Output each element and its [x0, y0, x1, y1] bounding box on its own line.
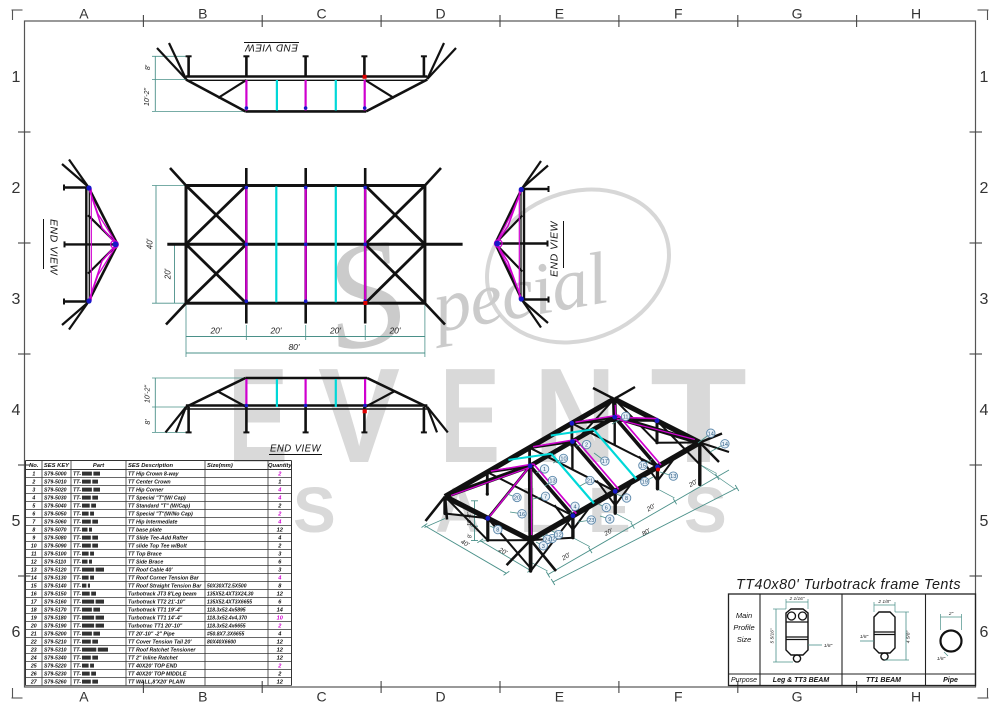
svg-text:S79-5190: S79-5190: [44, 624, 67, 630]
svg-text:TT1 BEAM: TT1 BEAM: [866, 677, 901, 684]
svg-text:Part: Part: [93, 463, 105, 469]
svg-text:10: 10: [277, 616, 284, 622]
svg-text:#50.8X7.3X6655: #50.8X7.3X6655: [207, 632, 244, 638]
svg-text:TT-: TT-: [73, 568, 81, 574]
svg-text:24: 24: [30, 656, 37, 662]
svg-text:TT-: TT-: [73, 544, 81, 550]
svg-text:TT-: TT-: [73, 480, 81, 486]
svg-text:SES KEY: SES KEY: [44, 463, 70, 469]
svg-text:12: 12: [555, 533, 561, 539]
svg-text:TT WALL,8'X20' PLAIN: TT WALL,8'X20' PLAIN: [128, 680, 185, 686]
svg-text:END VIEW: END VIEW: [270, 443, 322, 455]
svg-text:16: 16: [31, 592, 37, 598]
svg-text:9: 9: [608, 517, 611, 523]
svg-text:135X52.4XT3X6655: 135X52.4XT3X6655: [207, 600, 252, 606]
svg-text:15: 15: [31, 584, 37, 590]
svg-text:Main: Main: [736, 611, 752, 620]
svg-text:Turbotrack JT3 8'Leg beam: Turbotrack JT3 8'Leg beam: [128, 592, 197, 598]
svg-text:Leg & TT3 BEAM: Leg & TT3 BEAM: [773, 677, 830, 684]
svg-text:S79-5230: S79-5230: [44, 672, 67, 678]
svg-text:TT-: TT-: [73, 616, 81, 622]
svg-text:12: 12: [277, 640, 284, 646]
svg-text:18: 18: [31, 608, 37, 614]
svg-text:10: 10: [31, 544, 37, 550]
svg-text:5: 5: [32, 504, 35, 510]
svg-text:TT slide Top Tee w/Bolt: TT slide Top Tee w/Bolt: [128, 544, 187, 550]
svg-text:3: 3: [32, 488, 35, 494]
svg-text:C: C: [317, 6, 327, 22]
svg-text:E: E: [555, 689, 564, 705]
svg-text:A: A: [79, 6, 89, 22]
svg-text:20': 20': [329, 326, 341, 336]
svg-text:S79-5340: S79-5340: [44, 656, 67, 662]
svg-text:TT-: TT-: [73, 472, 81, 478]
svg-text:118.3x52.4v4,370: 118.3x52.4v4,370: [207, 616, 247, 622]
svg-text:19: 19: [31, 616, 37, 622]
svg-text:12: 12: [277, 592, 284, 598]
svg-text:H: H: [911, 689, 921, 705]
svg-text:TT base plate: TT base plate: [128, 528, 162, 534]
svg-text:TT-: TT-: [73, 512, 81, 518]
svg-text:4 5/8": 4 5/8": [906, 631, 912, 644]
svg-text:H: H: [911, 6, 921, 22]
svg-text:20': 20': [209, 326, 221, 336]
svg-text:TT Special "T"(W/ Cap): TT Special "T"(W/ Cap): [128, 496, 186, 502]
svg-text:1/8": 1/8": [937, 656, 946, 662]
svg-text:Profile: Profile: [733, 623, 754, 632]
svg-text:21: 21: [587, 479, 593, 485]
svg-text:2: 2: [31, 480, 35, 486]
svg-text:1: 1: [980, 69, 989, 86]
svg-text:4: 4: [573, 504, 576, 510]
svg-text:1: 1: [32, 472, 35, 478]
svg-text:TT-: TT-: [73, 648, 81, 654]
svg-text:2: 2: [12, 180, 21, 197]
svg-text:25: 25: [30, 664, 37, 670]
svg-text:S79-5100: S79-5100: [44, 552, 67, 558]
svg-text:V: V: [318, 340, 400, 491]
svg-text:S79-5010: S79-5010: [44, 480, 67, 486]
svg-text:TT-: TT-: [73, 584, 81, 590]
svg-text:23: 23: [30, 648, 37, 654]
svg-text:40': 40': [146, 238, 155, 249]
svg-text:4: 4: [980, 402, 989, 419]
svg-text:TT-: TT-: [73, 496, 81, 502]
svg-text:S79-5140: S79-5140: [44, 584, 67, 590]
svg-text:11: 11: [623, 415, 629, 421]
svg-text:3: 3: [12, 291, 21, 308]
svg-text:S79-5120: S79-5120: [44, 568, 67, 574]
svg-text:TT-: TT-: [73, 504, 81, 510]
svg-text:14: 14: [708, 431, 714, 437]
svg-text:S79-5050: S79-5050: [44, 512, 67, 518]
svg-text:14: 14: [31, 576, 37, 582]
svg-text:TT 2" Inline Ratchet: TT 2" Inline Ratchet: [128, 656, 178, 662]
svg-text:17: 17: [602, 459, 608, 465]
svg-text:S79-5130: S79-5130: [44, 576, 67, 582]
svg-text:5: 5: [12, 513, 21, 530]
svg-text:Turbotrack TT1 14'-4": Turbotrack TT1 14'-4": [128, 616, 183, 622]
svg-text:10’-2": 10’-2": [144, 87, 151, 106]
svg-text:Turbotrack TT1 19'-4": Turbotrack TT1 19'-4": [128, 608, 183, 614]
svg-text:5: 5: [980, 513, 989, 530]
svg-text:A: A: [79, 689, 89, 705]
svg-text:9: 9: [32, 536, 35, 542]
svg-text:TT Side Brace: TT Side Brace: [128, 560, 163, 566]
svg-text:TT 40X20' TOP END: TT 40X20' TOP END: [128, 664, 177, 670]
svg-text:TT-: TT-: [73, 664, 81, 670]
svg-text:1/8": 1/8": [824, 643, 833, 649]
svg-text:TT-: TT-: [73, 552, 81, 558]
svg-text:8: 8: [32, 528, 35, 534]
svg-text:5 5/16": 5 5/16": [770, 628, 776, 643]
svg-text:12: 12: [277, 648, 284, 654]
svg-text:20': 20': [269, 326, 281, 336]
svg-text:TT-: TT-: [73, 536, 81, 542]
svg-text:TT-: TT-: [73, 680, 81, 686]
svg-text:END VIEW: END VIEW: [549, 220, 561, 277]
svg-text:1: 1: [278, 480, 281, 486]
svg-text:TT 40X20' TOP MIDDLE: TT 40X20' TOP MIDDLE: [128, 672, 187, 678]
svg-text:G: G: [792, 6, 803, 22]
svg-text:TT Cover Tension Tail 20': TT Cover Tension Tail 20': [128, 640, 192, 646]
svg-text:20': 20': [388, 326, 400, 336]
svg-text:1/8": 1/8": [860, 634, 869, 640]
svg-text:20: 20: [514, 496, 520, 502]
svg-text:2 1/8": 2 1/8": [877, 599, 891, 605]
svg-text:135X52.4XT3X24,30: 135X52.4XT3X24,30: [207, 592, 254, 598]
svg-text:4: 4: [31, 496, 35, 502]
svg-text:13: 13: [670, 474, 676, 480]
svg-text:13: 13: [31, 568, 37, 574]
svg-text:TT Hip Corner: TT Hip Corner: [128, 488, 164, 494]
svg-text:118.3x52.4x5895: 118.3x52.4x5895: [207, 608, 246, 614]
svg-text:TT-: TT-: [73, 576, 81, 582]
svg-text:6: 6: [980, 624, 989, 641]
svg-text:6: 6: [605, 506, 608, 512]
svg-text:G: G: [792, 689, 803, 705]
svg-text:Size(mm): Size(mm): [207, 463, 233, 469]
svg-text:6: 6: [12, 624, 21, 641]
svg-text:TT Slide Tee-Add Rafter: TT Slide Tee-Add Rafter: [128, 536, 189, 542]
svg-text:TT Roof Corner Tension Bar: TT Roof Corner Tension Bar: [128, 576, 200, 582]
svg-text:TT Hip Crown 8-way: TT Hip Crown 8-way: [128, 472, 180, 478]
svg-text:1: 1: [12, 69, 21, 86]
svg-text:S79-5040: S79-5040: [44, 504, 67, 510]
svg-text:19: 19: [642, 480, 648, 486]
svg-text:B: B: [198, 689, 207, 705]
svg-text:S79-5260: S79-5260: [44, 680, 67, 686]
svg-text:118.3x52.4x6655: 118.3x52.4x6655: [207, 624, 246, 630]
svg-text:S79-5310: S79-5310: [44, 648, 67, 654]
svg-text:F: F: [674, 6, 683, 22]
svg-text:B: B: [198, 6, 207, 22]
svg-text:END VIEW: END VIEW: [48, 219, 60, 276]
svg-text:80': 80': [288, 342, 299, 352]
svg-text:TT Roof Cable 40': TT Roof Cable 40': [128, 568, 173, 574]
svg-text:TT-: TT-: [73, 632, 81, 638]
svg-text:TT-: TT-: [73, 520, 81, 526]
svg-text:TT-: TT-: [73, 656, 81, 662]
svg-text:12: 12: [277, 528, 284, 534]
svg-text:TT-: TT-: [73, 624, 81, 630]
svg-text:TT40x80' Turbotrack frame Tent: TT40x80' Turbotrack frame Tents: [736, 576, 961, 593]
svg-text:Quantity: Quantity: [268, 463, 292, 469]
svg-text:S79-5090: S79-5090: [44, 544, 67, 550]
svg-text:TT-: TT-: [73, 488, 81, 494]
svg-text:50X30XT2.5X500: 50X30XT2.5X500: [207, 584, 247, 590]
svg-text:14: 14: [722, 442, 728, 448]
svg-text:S79-5210: S79-5210: [44, 640, 67, 646]
svg-text:Size: Size: [737, 635, 752, 644]
svg-text:3: 3: [542, 544, 545, 550]
svg-text:S79-5200: S79-5200: [44, 632, 67, 638]
svg-text:12: 12: [277, 680, 284, 686]
svg-text:8: 8: [625, 496, 628, 502]
svg-text:2 1/16": 2 1/16": [788, 596, 804, 602]
svg-text:TT-: TT-: [73, 672, 81, 678]
svg-text:S79-5160: S79-5160: [44, 600, 67, 606]
svg-text:S79-5150: S79-5150: [44, 592, 67, 598]
svg-text:16: 16: [519, 512, 525, 518]
svg-text:SES Description: SES Description: [128, 463, 174, 469]
svg-text:14: 14: [277, 608, 284, 614]
svg-text:20': 20': [164, 268, 173, 280]
svg-text:12: 12: [277, 656, 284, 662]
svg-text:4: 4: [12, 402, 21, 419]
svg-text:6: 6: [32, 512, 35, 518]
svg-text:TT-: TT-: [73, 560, 81, 566]
svg-text:D: D: [435, 689, 445, 705]
svg-text:15: 15: [640, 464, 646, 470]
svg-text:S79-5070: S79-5070: [44, 528, 67, 534]
svg-text:8': 8': [145, 419, 152, 425]
svg-text:S: S: [293, 474, 336, 546]
svg-text:S79-5060: S79-5060: [44, 520, 67, 526]
svg-text:20: 20: [30, 624, 37, 630]
svg-text:10’-2": 10’-2": [145, 384, 152, 403]
svg-text:TT-: TT-: [73, 640, 81, 646]
svg-text:1: 1: [543, 467, 546, 473]
svg-text:Pipe: Pipe: [943, 677, 958, 684]
svg-text:S79-5220: S79-5220: [44, 664, 67, 670]
svg-text:11: 11: [31, 552, 36, 558]
svg-text:Turbotrack TT2 21'-10": Turbotrack TT2 21'-10": [128, 600, 186, 606]
svg-text:13: 13: [549, 479, 555, 485]
svg-text:D: D: [435, 6, 445, 22]
svg-text:8: 8: [496, 528, 499, 534]
svg-text:12: 12: [31, 560, 37, 566]
svg-text:S79-5080: S79-5080: [44, 536, 67, 542]
svg-text:TT Roof Ratchet Tensioner: TT Roof Ratchet Tensioner: [128, 648, 196, 654]
svg-text:S79-5020: S79-5020: [44, 488, 67, 494]
svg-text:TT-: TT-: [73, 608, 81, 614]
svg-text:8': 8': [145, 64, 152, 70]
svg-text:S79-5170: S79-5170: [44, 608, 67, 614]
svg-text:S79-5110: S79-5110: [44, 560, 66, 566]
svg-text:80X40X6600: 80X40X6600: [207, 640, 236, 646]
svg-text:TT 20'-10" -2" Pipe: TT 20'-10" -2" Pipe: [128, 632, 175, 638]
svg-text:26: 26: [30, 672, 37, 678]
svg-text:2: 2: [980, 180, 989, 197]
svg-text:7: 7: [544, 494, 547, 500]
svg-text:27: 27: [30, 680, 38, 686]
svg-text:F: F: [674, 689, 683, 705]
svg-text:TT Center Crown: TT Center Crown: [128, 480, 171, 486]
svg-text:TT Standard "T" (W/Cap): TT Standard "T" (W/Cap): [128, 504, 190, 510]
svg-text:Turbotrac TT1 20'-10": Turbotrac TT1 20'-10": [128, 624, 183, 630]
svg-text:END VIEW: END VIEW: [244, 42, 298, 54]
svg-text:TT-: TT-: [73, 600, 81, 606]
svg-text:TT-: TT-: [73, 592, 81, 598]
svg-text:TT Top Brace: TT Top Brace: [128, 552, 162, 558]
svg-text:C: C: [317, 689, 327, 705]
svg-text:TT Special "T"(W/No Cap): TT Special "T"(W/No Cap): [128, 512, 193, 518]
svg-text:TT-: TT-: [73, 528, 81, 534]
svg-text:S79-5030: S79-5030: [44, 496, 67, 502]
svg-text:TT Hip Intermediate: TT Hip Intermediate: [128, 520, 177, 526]
svg-text:TT Roof Straight Tension Bar: TT Roof Straight Tension Bar: [128, 584, 202, 590]
svg-text:3: 3: [980, 291, 989, 308]
svg-text:2: 2: [585, 443, 588, 449]
svg-text:S79-5180: S79-5180: [44, 616, 67, 622]
svg-text:21: 21: [30, 632, 37, 638]
svg-text:23: 23: [588, 518, 594, 524]
svg-text:S79-5000: S79-5000: [44, 472, 67, 478]
svg-text:22: 22: [30, 640, 37, 646]
svg-text:10: 10: [560, 457, 566, 463]
svg-text:Purpose: Purpose: [731, 677, 757, 684]
svg-text:No.: No.: [29, 463, 39, 469]
svg-text:E: E: [555, 6, 564, 22]
svg-text:2": 2": [948, 611, 954, 617]
